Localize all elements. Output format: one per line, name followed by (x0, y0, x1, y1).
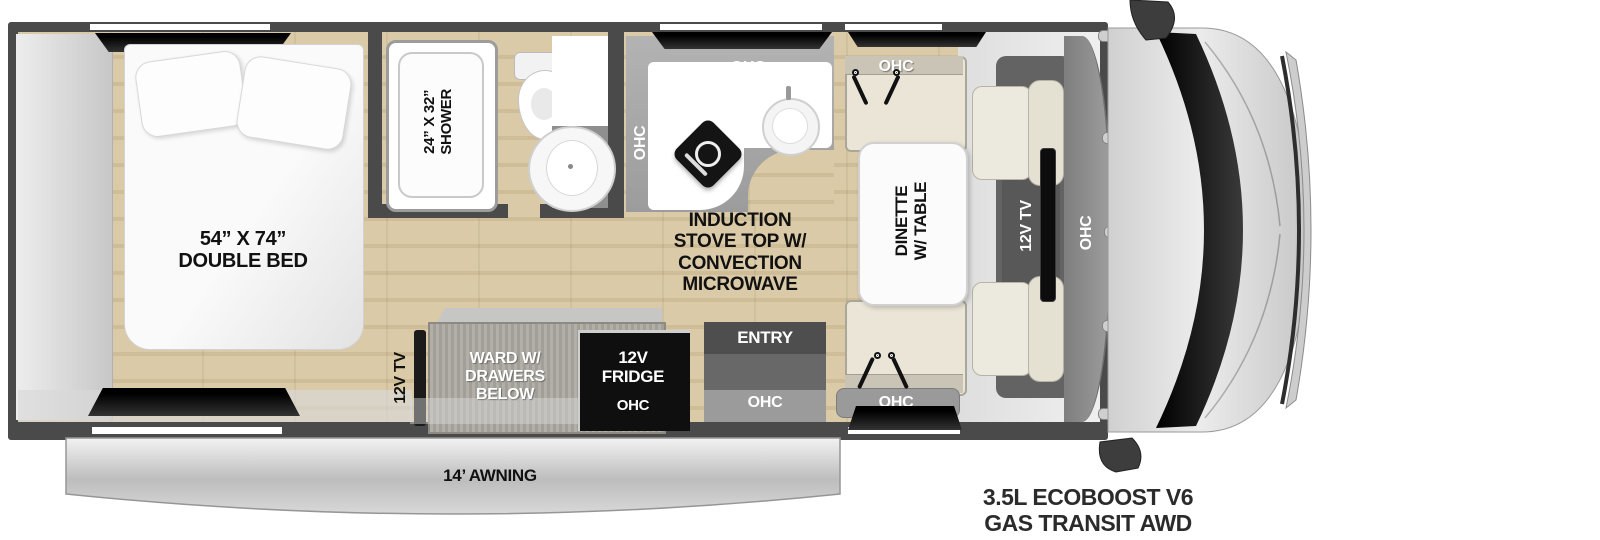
window-slot-dinette-top (845, 24, 942, 30)
window-slot-bedroom-top (90, 24, 270, 30)
window-slot-bedroom-bottom (92, 427, 282, 434)
rv-floorplan: 54” X 74” DOUBLE BED 24” X 32” SHOWER ME… (0, 0, 1600, 540)
wardrobe-label: WARD W/ DRAWERS BELOW (430, 350, 580, 404)
side-mirror-bottom (1099, 438, 1141, 472)
hinge-dot (888, 352, 895, 359)
kitchen-window-shade (652, 32, 832, 49)
fridge-label: 12V FRIDGE (578, 348, 688, 386)
stove-label: INDUCTION STOVE TOP W/ CONVECTION MICROW… (640, 210, 840, 295)
awning-label: 14’ AWNING (400, 466, 580, 485)
shower-label: 24” X 32” SHOWER (422, 67, 456, 177)
kitchen-sink-basin (772, 108, 808, 144)
bedroom-tv-label: 12V TV (392, 333, 410, 423)
kitchen-ohc-left-label: OHC (632, 113, 650, 173)
hinge-dot (893, 69, 900, 76)
pillow-right (234, 54, 353, 152)
awning-graphic (58, 436, 848, 540)
dinette-window-shade-bottom (848, 406, 962, 430)
entry-label: ENTRY (704, 328, 826, 347)
cab-front-graphic (950, 0, 1350, 540)
kitchen-faucet (786, 86, 791, 100)
fridge-ohc-label: OHC (578, 398, 688, 415)
bath-left-wall (368, 32, 382, 218)
engine-label: 3.5L ECOBOOST V6 GAS TRANSIT AWD (968, 484, 1208, 537)
bedroom-window-shade-bottom (88, 388, 300, 416)
hinge-dot (852, 69, 859, 76)
entry-ohc-label: OHC (704, 394, 826, 412)
hinge-dot (874, 352, 881, 359)
bedroom-rear-panel (16, 34, 113, 420)
window-slot-kitchen-top (660, 24, 822, 30)
double-bed-label: 54” X 74” DOUBLE BED (143, 228, 343, 273)
pillow-left (133, 49, 249, 139)
dinette-table-label: DINETTE W/ TABLE (892, 161, 930, 281)
med-label: MED (573, 136, 590, 196)
bath-right-wall (608, 32, 624, 218)
kitchen-ohc-top-label: OHC (718, 59, 778, 77)
